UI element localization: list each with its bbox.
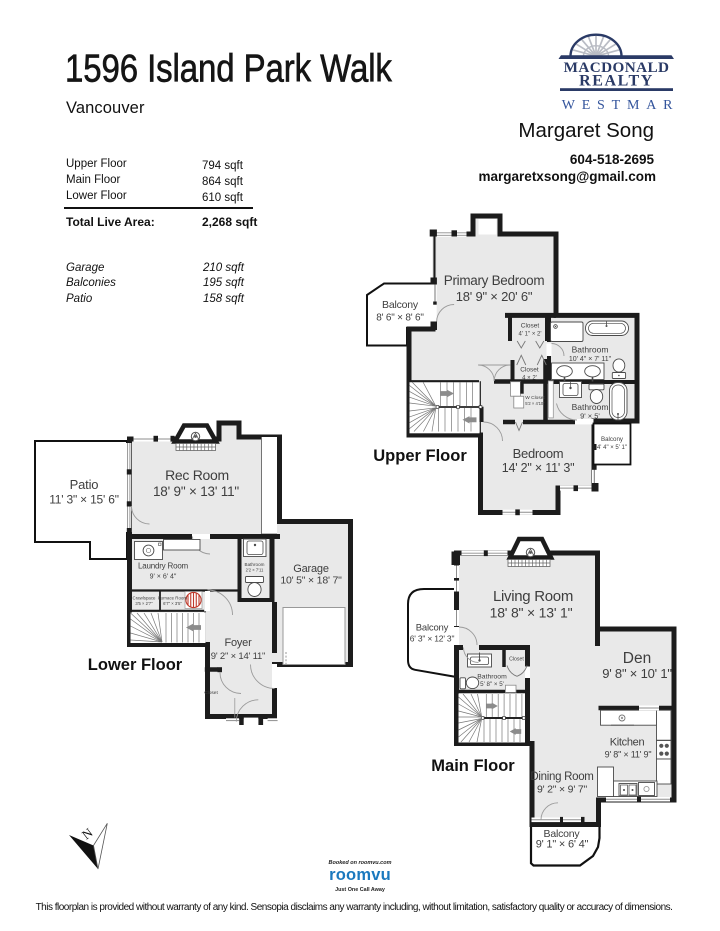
svg-text:3'5 × 2'7": 3'5 × 2'7" <box>135 601 153 606</box>
svg-text:14' 2" × 11' 3": 14' 2" × 11' 3" <box>502 461 575 475</box>
svg-text:Lower Floor: Lower Floor <box>88 656 183 674</box>
svg-text:9' 8" × 10' 1": 9' 8" × 10' 1" <box>602 666 672 681</box>
svg-text:18' 9" × 20' 6": 18' 9" × 20' 6" <box>456 289 533 304</box>
svg-text:9' 2" × 9' 7": 9' 2" × 9' 7" <box>537 784 587 796</box>
svg-text:18' 9" × 13' 11": 18' 9" × 13' 11" <box>153 484 239 499</box>
svg-text:Laundry Room: Laundry Room <box>138 562 189 571</box>
svg-text:Bathroom: Bathroom <box>245 562 265 567</box>
svg-text:Bathroom: Bathroom <box>572 345 609 355</box>
svg-text:N: N <box>79 824 96 842</box>
svg-text:10' 4" × 7' 11": 10' 4" × 7' 11" <box>569 356 612 363</box>
svg-text:6' 3" × 12' 3": 6' 3" × 12' 3" <box>410 634 455 644</box>
svg-text:Dining Room: Dining Room <box>530 771 593 783</box>
svg-text:9' × 5': 9' × 5' <box>580 412 600 421</box>
svg-text:Den: Den <box>623 650 651 667</box>
svg-text:9' × 6' 4": 9' × 6' 4" <box>150 574 177 581</box>
svg-text:5'2 × 4'10": 5'2 × 4'10" <box>525 401 545 406</box>
svg-text:8' 6" × 8' 6": 8' 6" × 8' 6" <box>376 313 424 324</box>
svg-text:Primary Bedroom: Primary Bedroom <box>444 273 545 288</box>
svg-text:Bathroom: Bathroom <box>572 402 609 412</box>
svg-text:Closet: Closet <box>520 367 539 374</box>
svg-text:REALTY: REALTY <box>579 73 654 90</box>
svg-text:WESTMAR: WESTMAR <box>562 98 680 113</box>
svg-text:Balcony: Balcony <box>601 436 624 443</box>
svg-text:4 × 2': 4 × 2' <box>522 376 537 382</box>
svg-text:Closet: Closet <box>509 657 524 663</box>
svg-text:9' 2" × 14' 11": 9' 2" × 14' 11" <box>211 651 265 662</box>
svg-text:Living Room: Living Room <box>493 588 573 605</box>
svg-text:Patio: Patio <box>70 477 99 492</box>
svg-text:Closet: Closet <box>521 323 540 330</box>
svg-text:Rec Room: Rec Room <box>165 467 229 483</box>
svg-text:Balcony: Balcony <box>416 623 449 634</box>
svg-text:4' 1" × 2': 4' 1" × 2' <box>519 332 542 338</box>
svg-text:2'2 × 7'11: 2'2 × 7'11 <box>246 568 264 573</box>
svg-text:18' 8" × 13' 1": 18' 8" × 13' 1" <box>490 605 573 621</box>
svg-text:10' 5" × 18' 7": 10' 5" × 18' 7" <box>280 575 342 587</box>
svg-text:Closet: Closet <box>204 690 218 696</box>
svg-text:Furnace Room: Furnace Room <box>158 596 187 601</box>
svg-text:9' 1" × 6' 4": 9' 1" × 6' 4" <box>536 839 589 851</box>
svg-text:Bedroom: Bedroom <box>513 446 564 461</box>
svg-text:Main Floor: Main Floor <box>431 757 515 775</box>
svg-text:Balcony: Balcony <box>382 299 419 311</box>
svg-text:Foyer: Foyer <box>224 637 252 649</box>
svg-text:5' 8" × 5': 5' 8" × 5' <box>480 681 504 688</box>
svg-text:9' 8" × 11' 9": 9' 8" × 11' 9" <box>605 750 652 760</box>
svg-text:Crawlspace: Crawlspace <box>133 596 156 601</box>
svg-text:4' 4" × 5' 1": 4' 4" × 5' 1" <box>597 445 627 451</box>
svg-text:Upper Floor: Upper Floor <box>373 447 467 465</box>
svg-text:11' 3" × 15' 6": 11' 3" × 15' 6" <box>49 493 119 507</box>
svg-text:Bathroom: Bathroom <box>477 674 507 681</box>
svg-text:Garage: Garage <box>293 563 329 575</box>
svg-text:Kitchen: Kitchen <box>610 737 645 749</box>
svg-text:6'7" × 3'5": 6'7" × 3'5" <box>163 601 182 606</box>
